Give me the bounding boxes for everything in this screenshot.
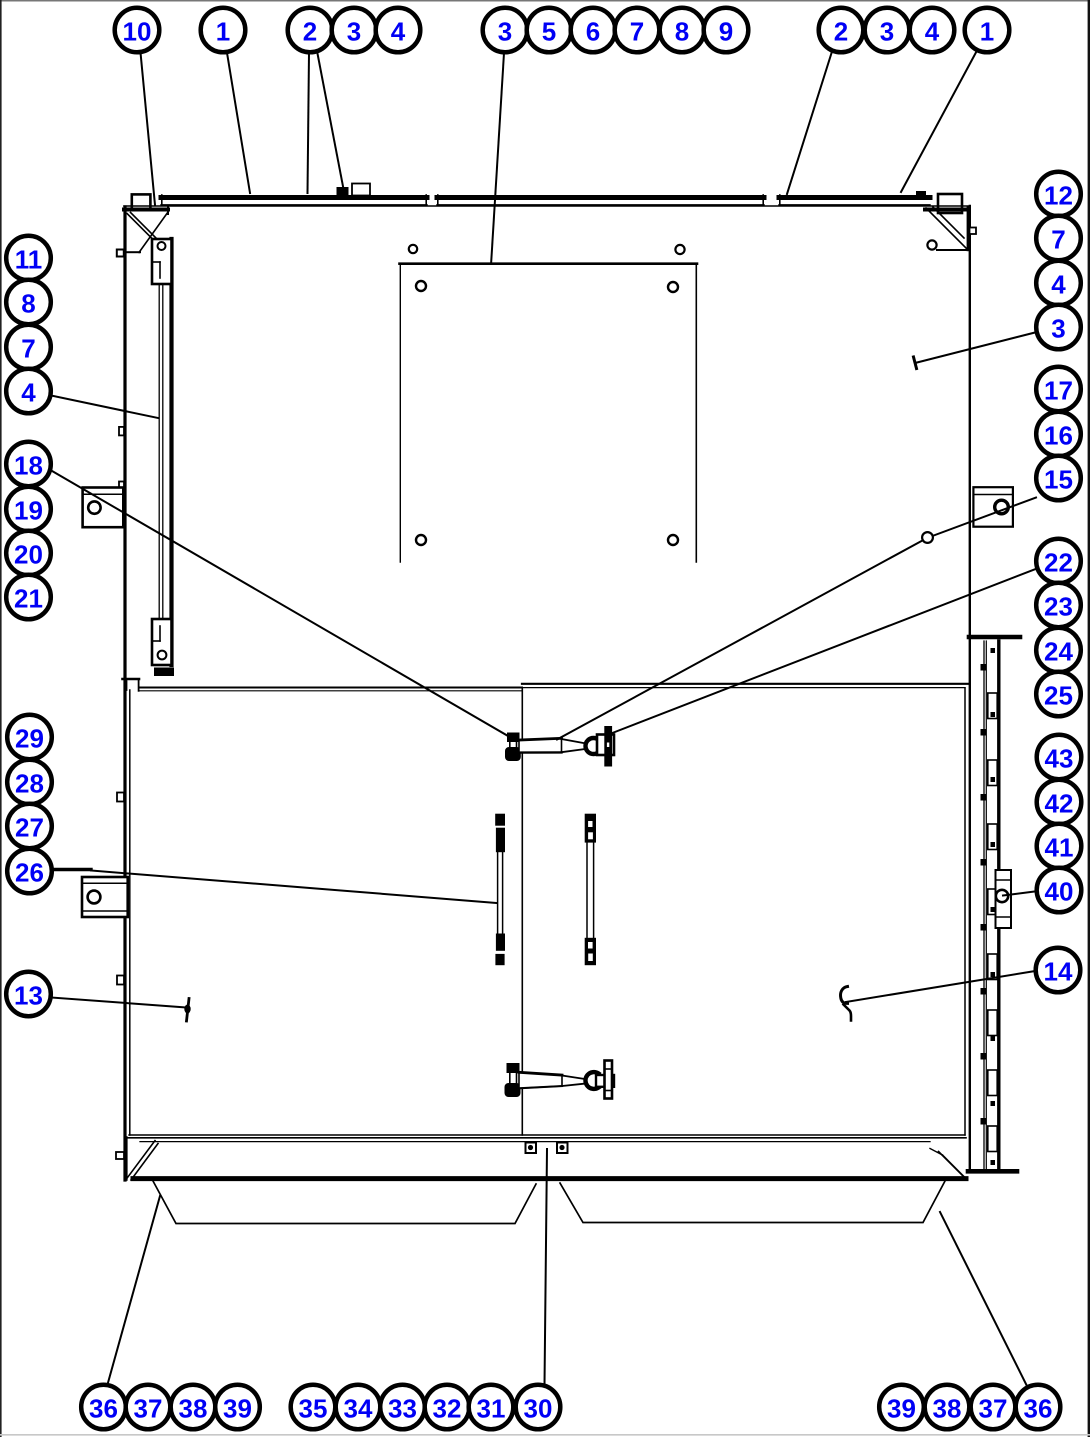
svg-text:31: 31 <box>477 1393 506 1423</box>
svg-text:1: 1 <box>216 16 230 46</box>
svg-text:29: 29 <box>15 723 44 753</box>
svg-text:14: 14 <box>1044 956 1073 986</box>
svg-text:3: 3 <box>347 16 361 46</box>
svg-text:37: 37 <box>979 1393 1008 1423</box>
svg-text:27: 27 <box>15 812 44 842</box>
svg-text:36: 36 <box>89 1393 118 1423</box>
svg-text:9: 9 <box>719 16 733 46</box>
svg-text:30: 30 <box>524 1393 553 1423</box>
svg-text:13: 13 <box>14 980 43 1010</box>
svg-text:28: 28 <box>15 768 44 798</box>
svg-text:7: 7 <box>21 333 35 363</box>
svg-text:3: 3 <box>1051 313 1065 343</box>
svg-text:7: 7 <box>630 16 644 46</box>
svg-text:2: 2 <box>834 16 848 46</box>
svg-text:35: 35 <box>299 1393 328 1423</box>
svg-text:20: 20 <box>14 539 43 569</box>
svg-text:17: 17 <box>1044 375 1073 405</box>
svg-text:8: 8 <box>21 288 35 318</box>
svg-text:24: 24 <box>1044 636 1073 666</box>
svg-text:19: 19 <box>14 495 43 525</box>
svg-text:4: 4 <box>391 16 406 46</box>
svg-text:33: 33 <box>388 1393 417 1423</box>
svg-text:32: 32 <box>433 1393 462 1423</box>
svg-text:4: 4 <box>1051 269 1066 299</box>
svg-text:8: 8 <box>675 16 689 46</box>
svg-text:7: 7 <box>1051 224 1065 254</box>
svg-text:25: 25 <box>1044 680 1073 710</box>
svg-text:12: 12 <box>1044 180 1073 210</box>
svg-text:6: 6 <box>586 16 600 46</box>
svg-text:18: 18 <box>14 450 43 480</box>
svg-text:37: 37 <box>134 1393 163 1423</box>
svg-text:39: 39 <box>223 1393 252 1423</box>
svg-text:40: 40 <box>1045 876 1074 906</box>
svg-text:23: 23 <box>1044 591 1073 621</box>
svg-text:21: 21 <box>14 583 43 613</box>
svg-text:42: 42 <box>1045 788 1074 818</box>
svg-text:39: 39 <box>887 1393 916 1423</box>
svg-text:16: 16 <box>1044 420 1073 450</box>
svg-text:4: 4 <box>925 16 940 46</box>
svg-text:3: 3 <box>880 16 894 46</box>
svg-text:1: 1 <box>980 16 994 46</box>
svg-text:22: 22 <box>1044 547 1073 577</box>
svg-text:38: 38 <box>933 1393 962 1423</box>
svg-text:15: 15 <box>1044 464 1073 494</box>
svg-text:34: 34 <box>344 1393 373 1423</box>
svg-text:3: 3 <box>498 16 512 46</box>
svg-text:41: 41 <box>1045 832 1074 862</box>
svg-text:43: 43 <box>1045 743 1074 773</box>
svg-text:26: 26 <box>15 857 44 887</box>
svg-text:4: 4 <box>21 377 36 407</box>
svg-text:38: 38 <box>179 1393 208 1423</box>
svg-text:5: 5 <box>542 16 556 46</box>
svg-text:36: 36 <box>1024 1393 1053 1423</box>
svg-text:11: 11 <box>15 244 43 274</box>
svg-text:2: 2 <box>303 16 317 46</box>
svg-text:10: 10 <box>123 16 152 46</box>
